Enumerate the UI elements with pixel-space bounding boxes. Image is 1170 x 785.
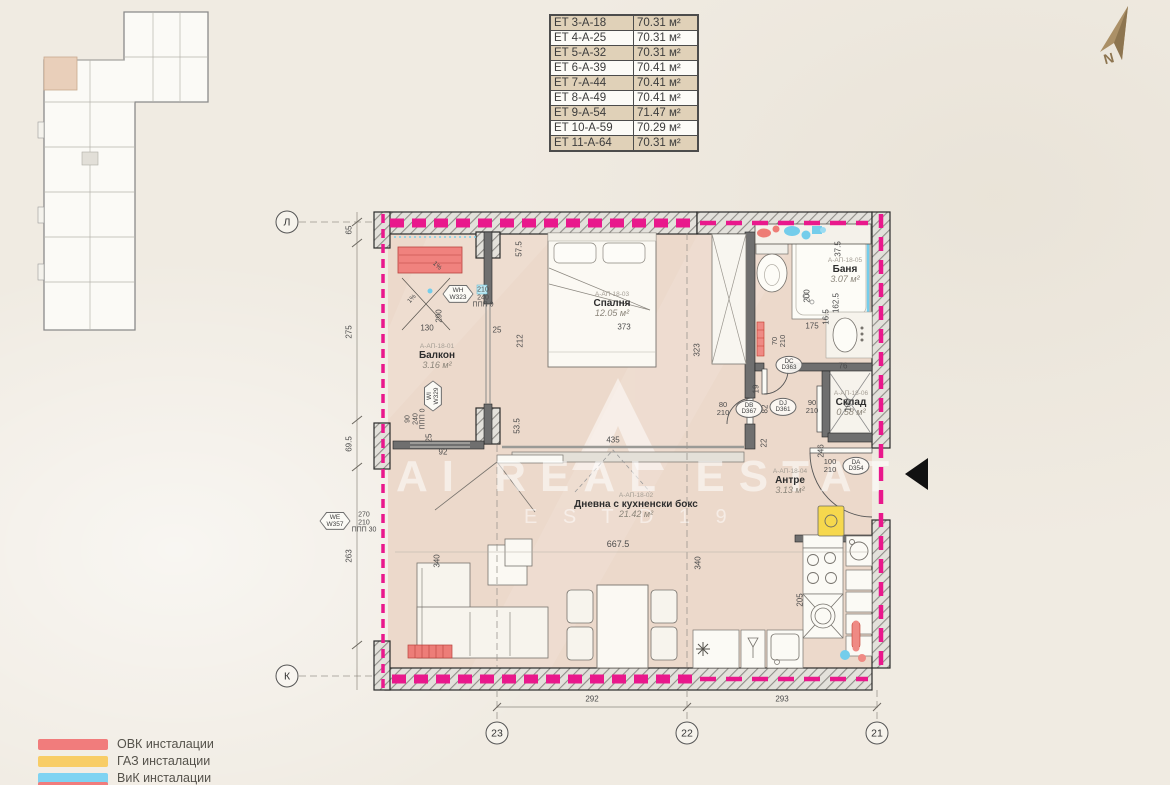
legend-swatch-ovk [38,739,108,750]
legend-item-gas: ГАЗ инсталации [38,753,214,769]
dim-label: 340 [695,556,704,569]
unit-area: 70.31 м² [634,32,697,44]
room-area: 12.05 м² [595,309,629,319]
building-overview-plan [28,2,232,348]
dim-label: 290 [436,309,445,322]
door-size-dj: 90210 [806,399,819,416]
room-label-antre: А-АП-18-04 Антре 3.13 м² [773,468,807,496]
table-row: ET 11-A-6470.31 м² [551,136,697,150]
wardrobe [712,234,746,364]
axis-marker-22: 22 [676,722,699,745]
table-row: ET 8-A-4970.41 м² [551,91,697,106]
axis-marker-K: К [276,665,299,688]
table-row: ET 6-A-3970.41 м² [551,61,697,76]
legend: ОВК инсталации ГАЗ инсталации ВиК инстал… [38,736,214,785]
unit-area: 70.41 м² [634,77,697,89]
dim-label: 76 [839,363,848,372]
gas-box [818,506,844,536]
room-id: А-АП-18-04 [773,468,807,475]
dim-label: 323 [694,343,703,356]
window-size-we: 270210ППП 30 [352,511,377,534]
window-size-wi: 90240ППП 0 [404,409,427,430]
room-label-living: А-АП-18-02 Дневна с кухненски бокс 21.42… [574,492,698,520]
dim-label: 16.5 [823,309,832,325]
room-label-bath: А-АП-18-05 Баня 3.07 м² [828,257,862,285]
bathroom-sink [826,312,872,358]
dim-label: 373 [617,324,630,333]
dim-label: 69.5 [346,436,355,452]
room-id: А-АП-18-01 [420,343,454,350]
unit-area: 70.31 м² [634,17,697,29]
freezer-icon [696,642,710,656]
table-row: ET 7-A-4470.41 м² [551,76,697,91]
dim-label: 100 [845,398,854,411]
dim-label: 175 [805,323,818,332]
unit-area: 70.41 м² [634,62,697,74]
dim-label: 340 [434,554,443,567]
toilet [756,243,788,292]
dim-label: 212 [517,334,526,347]
highlighted-unit [44,57,77,90]
coffee-table [488,539,532,585]
balcony-radiator [398,247,462,273]
dim-label: 25 [493,327,502,336]
dim-label: 667.5 [607,540,630,550]
room-area: 21.42 м² [619,510,653,520]
table-row: ET 4-A-2570.31 м² [551,31,697,46]
room-area: 3.13 м² [775,486,804,496]
door-size-da: 100210 [824,458,837,475]
dim-label: 37.5 [835,241,844,257]
axis-marker-21: 21 [866,722,889,745]
dim-label: 57.5 [516,241,525,257]
unit-area: 70.31 м² [634,137,697,149]
room-id: А-АП-18-05 [828,257,862,264]
table-row: ET 3-A-1870.31 м² [551,16,697,31]
unit-label: ET 9-A-54 [551,106,634,120]
door-size-db: 80210 [717,401,730,418]
dim-label: 200 [804,289,813,302]
dim-label: 65 [346,226,355,235]
dim-label: 162.5 [833,293,842,313]
dim-label: 263 [346,549,355,562]
room-label-bedroom: А-АП-18-03 Спалня 12.05 м² [593,291,630,319]
dim-label: 275 [346,325,355,338]
room-area: 3.16 м² [422,361,451,371]
dim-label: 205 [797,593,806,606]
unit-area: 70.41 м² [634,92,697,104]
dim-label: 293 [775,696,788,705]
unit-area: 70.29 м² [634,122,697,134]
towel-radiator [757,322,764,356]
unit-label: ET 7-A-44 [551,76,634,90]
unit-label: ET 3-A-18 [551,16,634,30]
stair-core [82,152,98,165]
table-row: ET 9-A-5471.47 м² [551,106,697,121]
dim-label: 53.5 [514,418,523,434]
door-size-dc: 70210 [771,335,788,348]
room-id: А-АП-18-06 [834,390,868,397]
dim-label: 22 [761,439,770,448]
unit-label: ET 11-A-64 [551,136,634,150]
dim-label: 435 [606,437,619,446]
unit-label: ET 6-A-39 [551,61,634,75]
axis-marker-L: Л [276,211,299,234]
dim-label: 246 [818,444,827,457]
floor-area-table: ET 3-A-1870.31 м² ET 4-A-2570.31 м² ET 5… [549,14,699,152]
table-row: ET 5-A-3270.31 м² [551,46,697,61]
entrance-arrow-icon [905,458,928,490]
dim-label: 130 [420,325,433,334]
dim-label: 292 [585,696,598,705]
legend-swatch-gas [38,756,108,767]
floor-plan-page: ET 3-A-1870.31 м² ET 4-A-2570.31 м² ET 5… [0,0,1170,785]
unit-area: 70.31 м² [634,47,697,59]
room-label-balcony: А-АП-18-01 Балкон 3.16 м² [419,343,455,371]
table-row: ET 10-A-5970.29 м² [551,121,697,136]
room-id: А-АП-18-03 [595,291,629,298]
dim-label: 25 [426,434,435,443]
north-label: N [1102,49,1116,67]
unit-label: ET 4-A-25 [551,31,634,45]
legend-item-ovk: ОВК инсталации [38,736,214,752]
unit-label: ET 5-A-32 [551,46,634,60]
room-area: 3.07 м² [830,275,859,285]
living-radiator [408,645,452,658]
unit-label: ET 8-A-49 [551,91,634,105]
axis-marker-23: 23 [486,722,509,745]
dim-label: 92 [439,449,448,458]
window-size-wh: 210240ППП 0 [473,286,494,309]
dim-label: 82 [762,405,771,414]
north-arrow-icon: N [1092,2,1144,68]
unit-area: 71.47 м² [634,107,697,119]
unit-label: ET 10-A-59 [551,121,634,135]
plumbing-cluster [755,224,871,244]
dim-label: 19 [753,385,762,394]
